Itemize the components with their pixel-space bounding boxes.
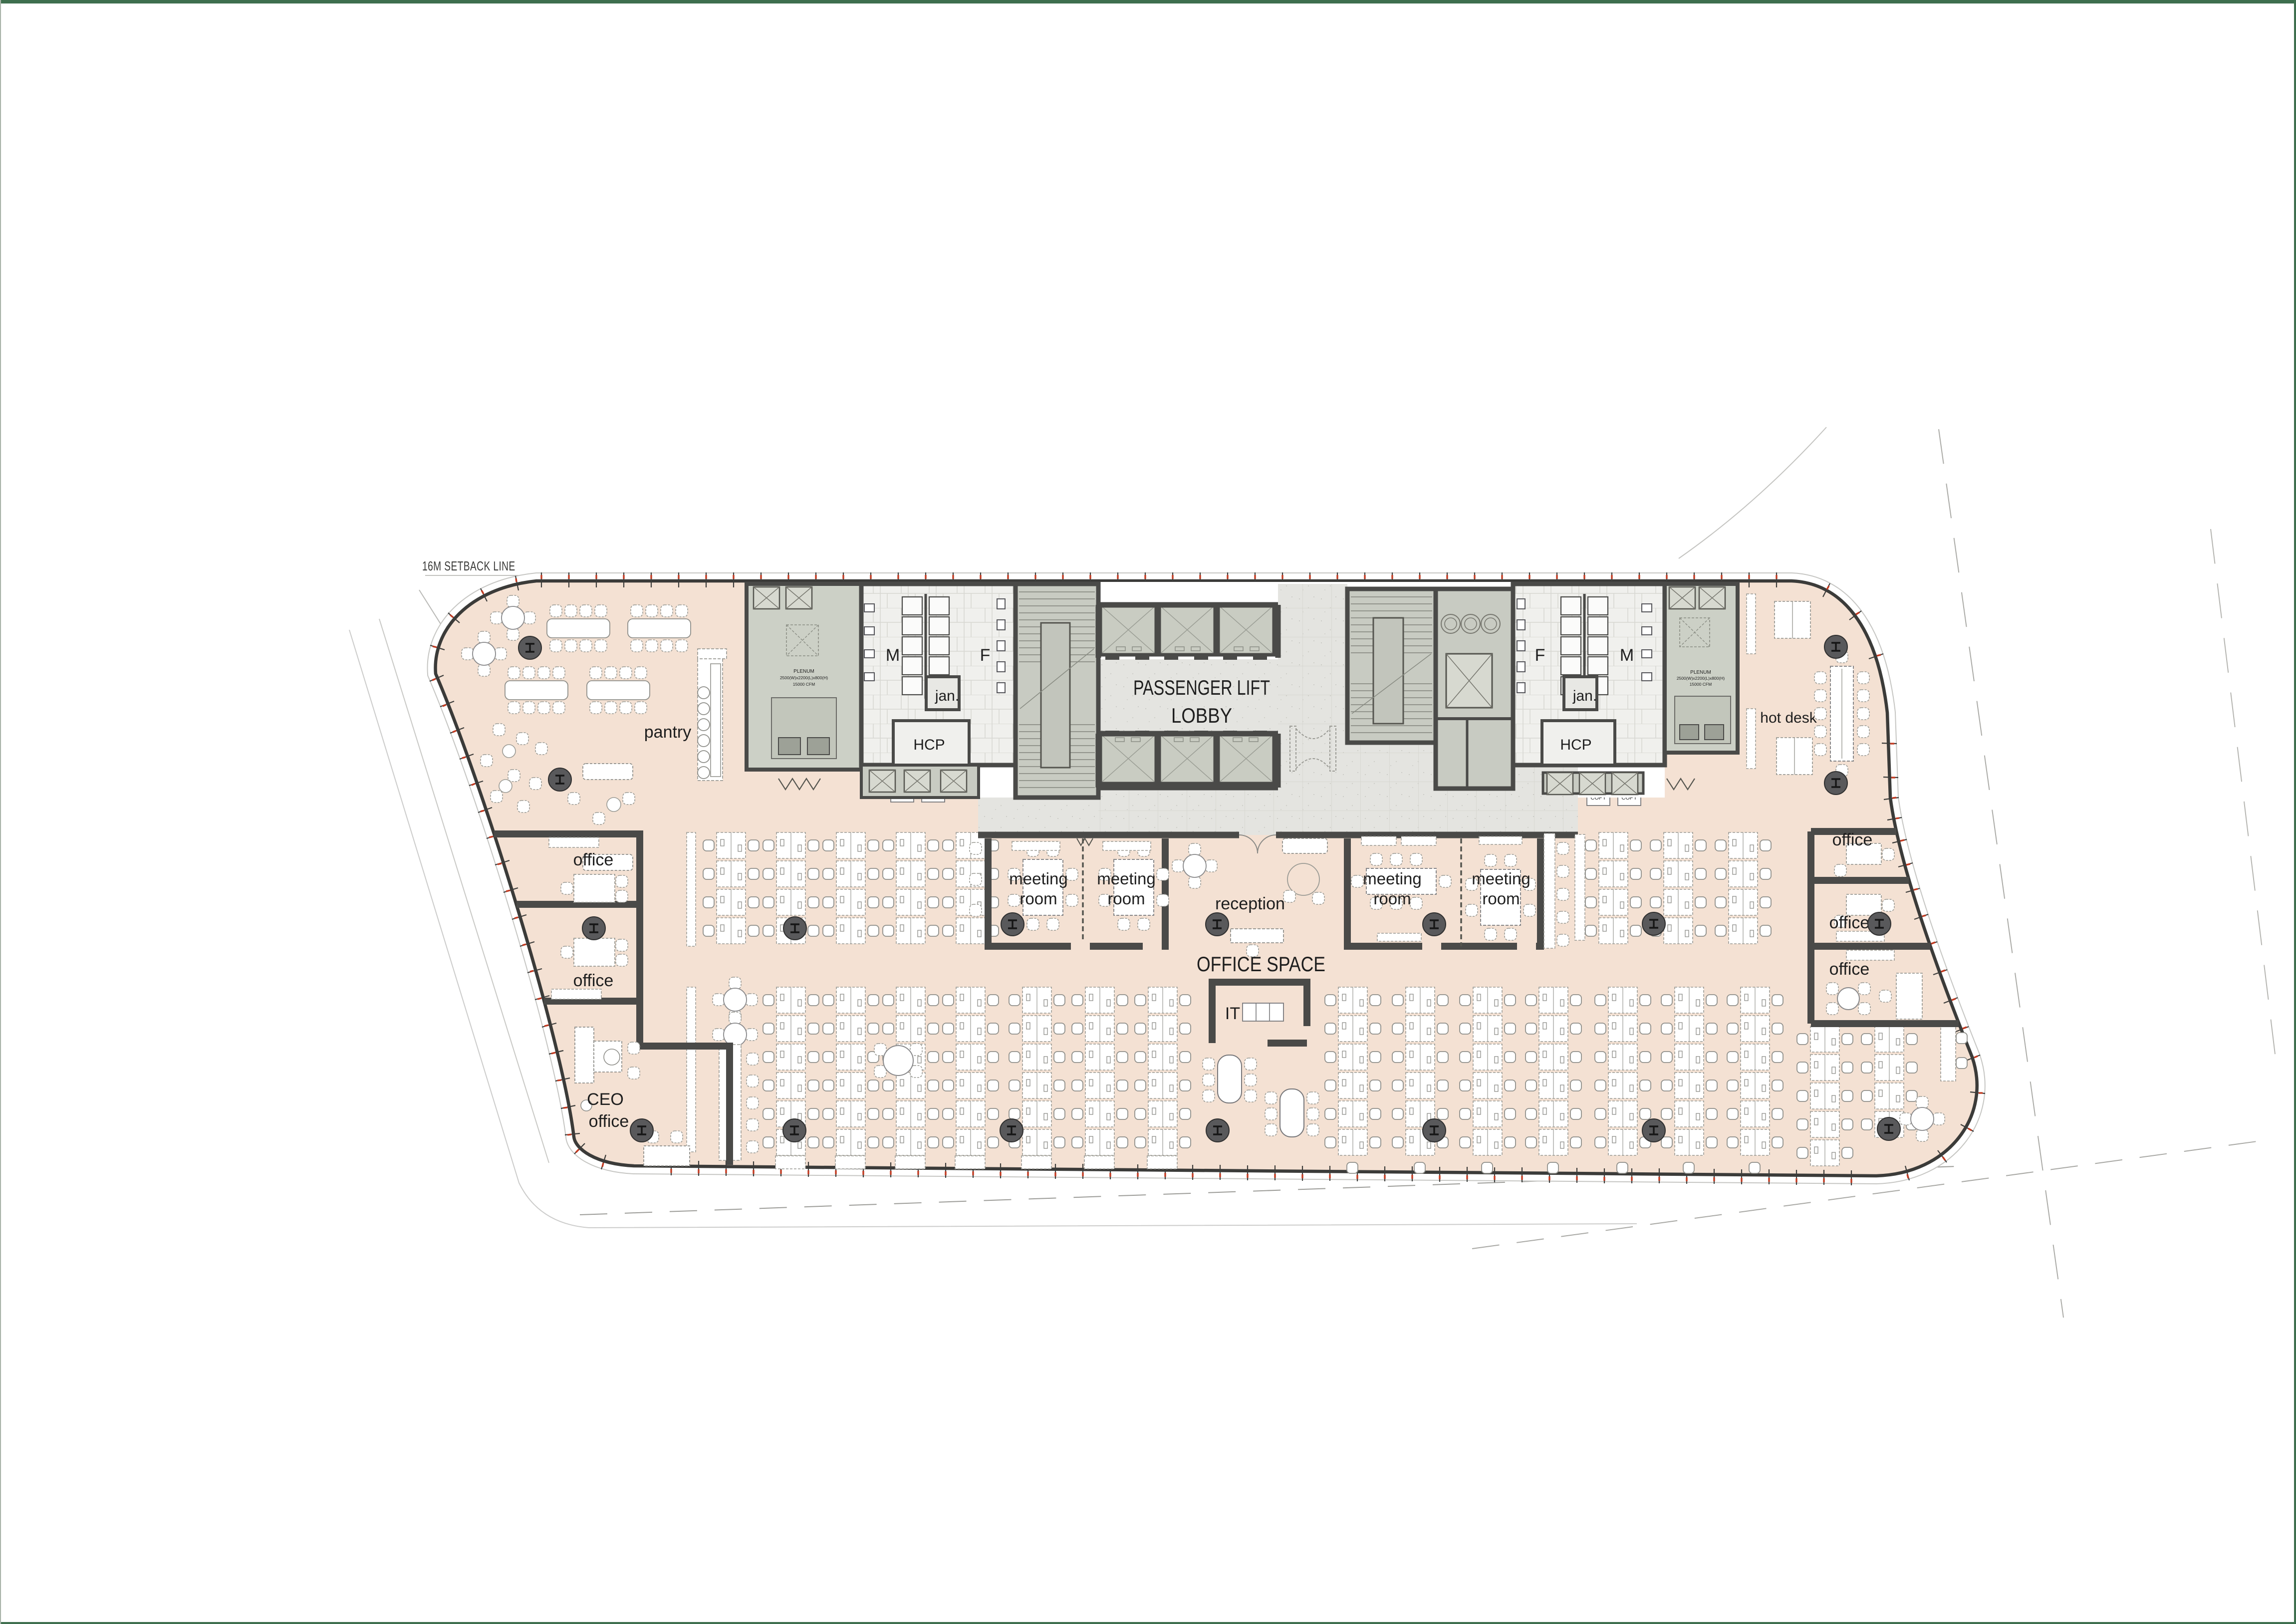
svg-text:2500(W)x2200(L)x800(H): 2500(W)x2200(L)x800(H): [1677, 676, 1725, 681]
svg-text:CEO: CEO: [587, 1090, 624, 1109]
svg-text:office: office: [1829, 913, 1870, 932]
svg-text:room: room: [1373, 889, 1411, 908]
svg-text:HCP: HCP: [1560, 737, 1591, 753]
svg-text:room: room: [1482, 889, 1520, 908]
svg-text:HCP: HCP: [913, 737, 945, 753]
svg-text:15000 CFM: 15000 CFM: [1690, 682, 1712, 687]
svg-text:jan.: jan.: [1572, 688, 1597, 704]
svg-text:F: F: [1535, 646, 1545, 665]
svg-text:room: room: [1020, 889, 1057, 908]
svg-text:M: M: [886, 646, 900, 665]
svg-text:office: office: [573, 971, 614, 990]
svg-text:meeting: meeting: [1097, 869, 1155, 888]
svg-text:meeting: meeting: [1009, 869, 1067, 888]
svg-text:office: office: [589, 1112, 629, 1131]
svg-text:PASSENGER LIFT: PASSENGER LIFT: [1133, 676, 1270, 699]
svg-text:office: office: [573, 850, 614, 869]
svg-text:PLENUM: PLENUM: [1690, 670, 1711, 675]
svg-text:meeting: meeting: [1363, 869, 1421, 888]
svg-text:pantry: pantry: [644, 723, 692, 742]
svg-text:2500(W)x2200(L)x800(H): 2500(W)x2200(L)x800(H): [780, 675, 828, 680]
svg-text:16M SETBACK LINE: 16M SETBACK LINE: [422, 558, 515, 573]
svg-text:15000 CFM: 15000 CFM: [793, 682, 815, 687]
svg-text:meeting: meeting: [1472, 869, 1530, 888]
svg-text:IT: IT: [1225, 1004, 1240, 1023]
svg-text:jan.: jan.: [935, 688, 959, 704]
svg-text:LOBBY: LOBBY: [1171, 704, 1232, 727]
svg-text:M: M: [1620, 646, 1634, 665]
svg-text:reception: reception: [1215, 894, 1285, 913]
svg-text:room: room: [1107, 889, 1145, 908]
svg-text:office: office: [1832, 830, 1873, 849]
svg-text:PLENUM: PLENUM: [793, 669, 814, 674]
svg-text:office: office: [1829, 960, 1870, 979]
svg-text:OFFICE SPACE: OFFICE SPACE: [1197, 952, 1325, 976]
svg-text:F: F: [980, 646, 991, 665]
svg-text:hot desk: hot desk: [1760, 710, 1817, 726]
